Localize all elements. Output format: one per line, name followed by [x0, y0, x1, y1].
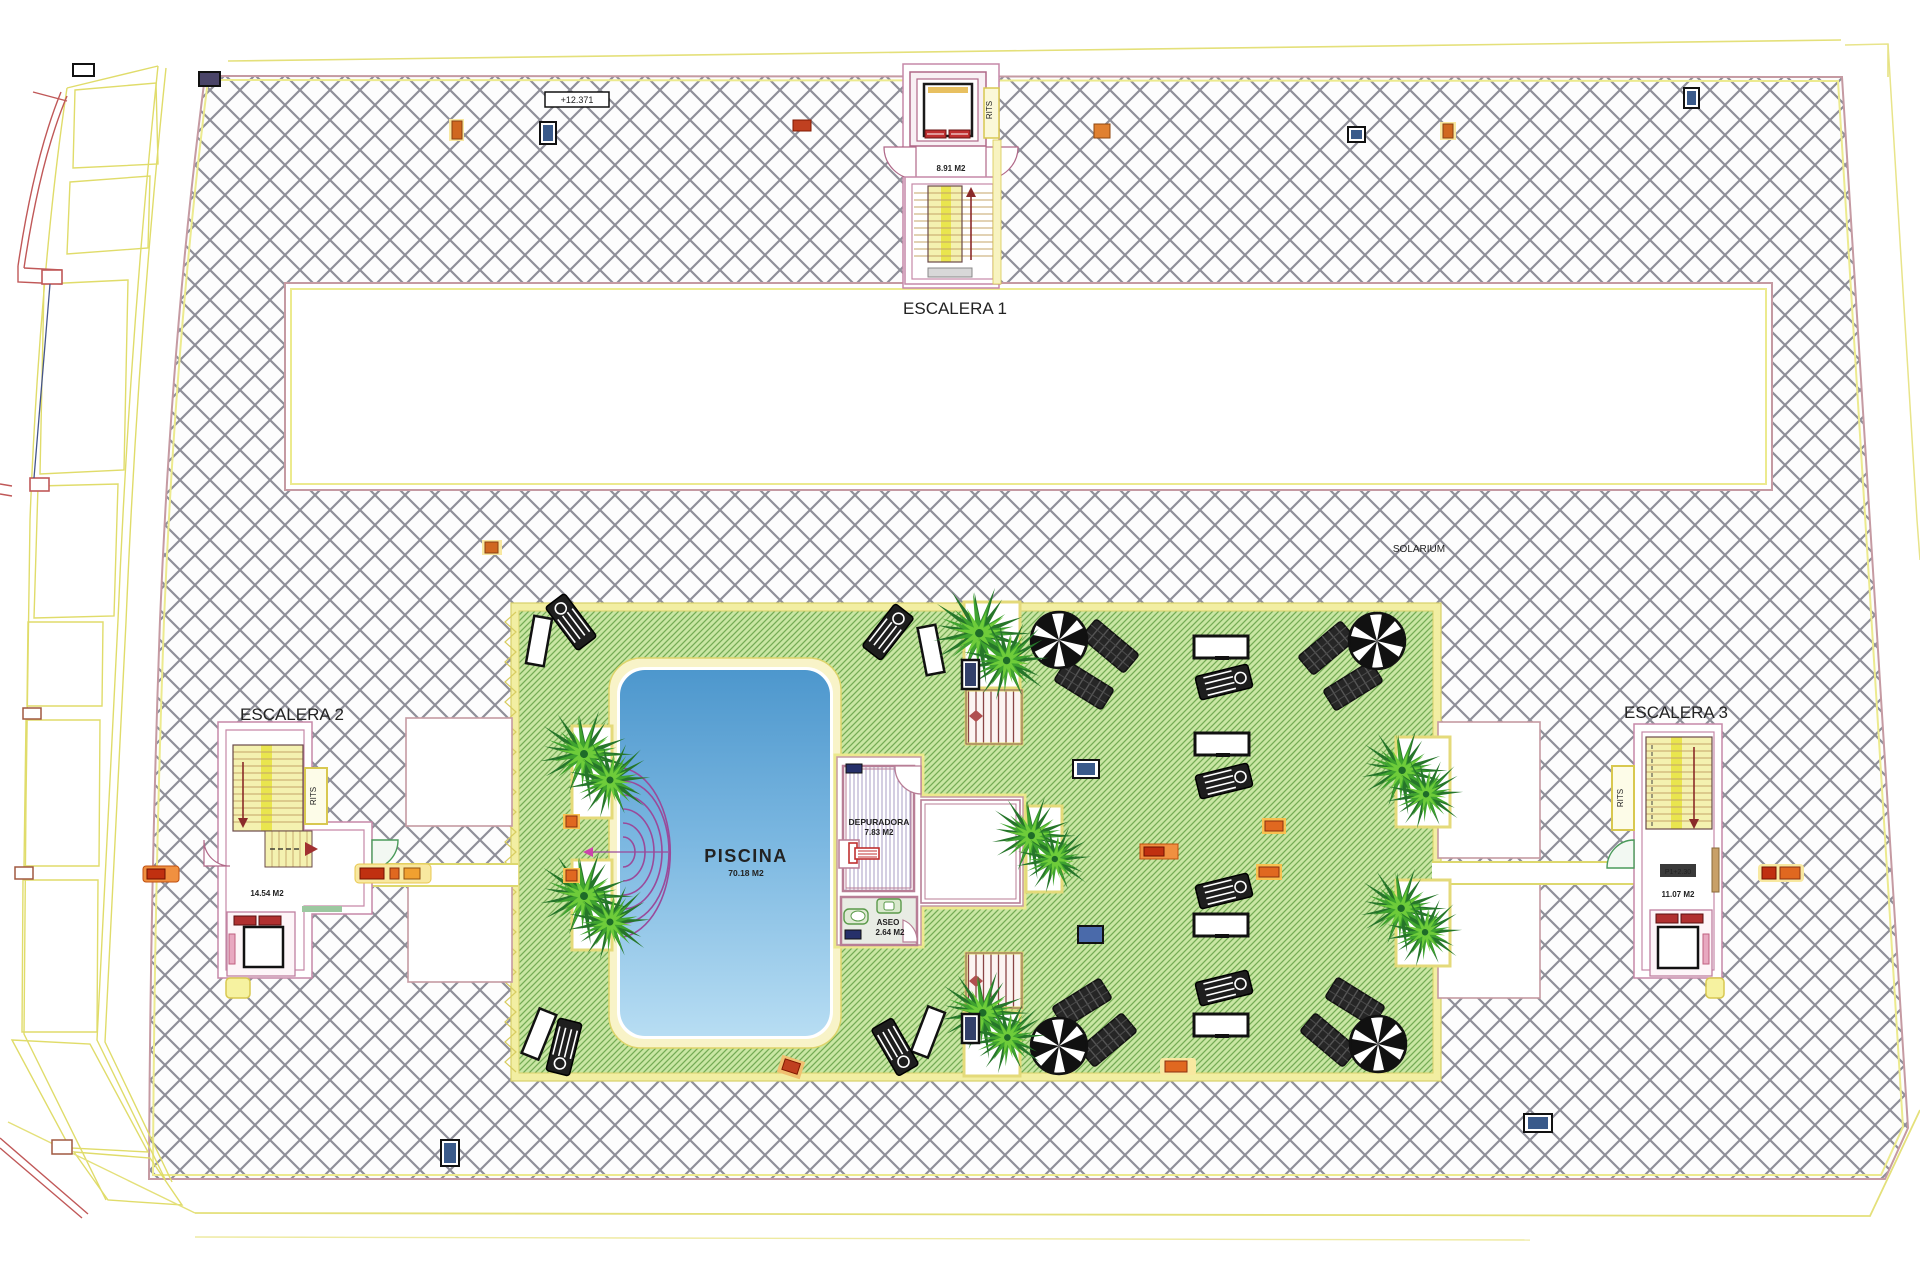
- svg-text:11.07 M2: 11.07 M2: [1662, 890, 1695, 899]
- svg-text:ESCALERA 2: ESCALERA 2: [240, 705, 344, 724]
- svg-text:8.91 M2: 8.91 M2: [937, 164, 966, 173]
- svg-text:ESCALERA 3: ESCALERA 3: [1624, 703, 1728, 722]
- svg-text:2.64 M2: 2.64 M2: [876, 928, 905, 937]
- svg-text:7.83 M2: 7.83 M2: [865, 828, 894, 837]
- svg-text:P1+2.30: P1+2.30: [1665, 869, 1691, 876]
- svg-text:RITS: RITS: [985, 101, 994, 119]
- svg-text:ESCALERA 1: ESCALERA 1: [903, 299, 1007, 318]
- svg-text:SOLARIUM: SOLARIUM: [1393, 544, 1445, 555]
- svg-text:PISCINA: PISCINA: [704, 846, 788, 866]
- svg-text:70.18 M2: 70.18 M2: [728, 868, 764, 878]
- svg-text:+12.371: +12.371: [561, 95, 594, 105]
- svg-text:14.54 M2: 14.54 M2: [250, 889, 284, 898]
- svg-text:ASEO: ASEO: [877, 918, 900, 927]
- svg-text:RITS: RITS: [1616, 789, 1625, 807]
- svg-text:DEPURADORA: DEPURADORA: [849, 817, 910, 827]
- svg-text:RITS: RITS: [309, 787, 318, 805]
